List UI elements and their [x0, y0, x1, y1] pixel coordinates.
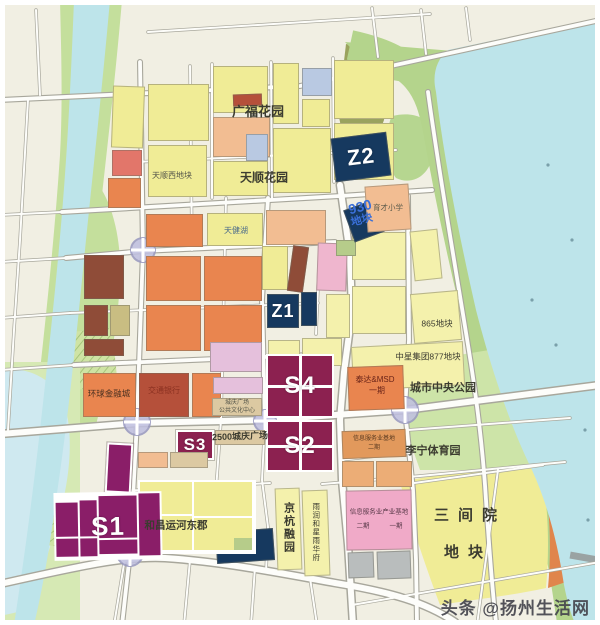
- zone-block: [262, 246, 288, 290]
- label-culture-l2: 公共文化中心: [219, 408, 255, 414]
- zone-block: [376, 461, 412, 487]
- label-info-base-l1: 信息服务业基地: [353, 436, 395, 442]
- label-hechang: 和昌运河东郡: [145, 520, 208, 531]
- zone-block-865: [410, 290, 462, 344]
- marker-s4-label: S4: [266, 354, 334, 418]
- zone-block: [146, 305, 201, 351]
- marker-s2-cluster: S2: [266, 420, 334, 472]
- label-central-park: 城市中央公园: [410, 383, 476, 395]
- label-sanjianyuan: 三间院: [434, 508, 506, 524]
- zone-block: [146, 256, 201, 301]
- zone-block: [266, 210, 326, 245]
- zone-block: [84, 255, 124, 299]
- label-teda: 泰达&MSD: [355, 376, 394, 384]
- zone-block-s1-north: [105, 442, 134, 493]
- zone-block: [342, 461, 374, 487]
- label-tianshun-west: 天顺西地块: [152, 172, 192, 180]
- zone-block: [352, 286, 406, 334]
- zone-block: [138, 452, 168, 468]
- label-lining-sports: 李宁体育园: [406, 446, 461, 458]
- marker-z2-block: Z2: [331, 132, 392, 182]
- zone-block: [148, 84, 209, 141]
- label-info-base-l2: 二期: [368, 445, 380, 451]
- label-global-finance: 环球金融城: [88, 390, 131, 399]
- zone-block: [170, 452, 208, 468]
- zone-block: [409, 229, 442, 282]
- label-guangfu-garden: 广福花园: [232, 105, 284, 119]
- watermark: 头条 @扬州生活网: [441, 594, 590, 619]
- label-info-industry: 信息服务业产业基地: [350, 510, 409, 517]
- label-info-industry-p2: 二期: [357, 524, 370, 531]
- zone-block: [348, 552, 375, 579]
- label-yucai-school: 育才小学: [373, 204, 403, 212]
- marker-z2-label: Z2: [332, 133, 391, 181]
- zone-block: [84, 339, 124, 356]
- label-2500-plaza: 2500城庆广场: [212, 431, 268, 442]
- marker-s2-label: S2: [266, 420, 334, 472]
- label-tianshun-garden: 天顺花园: [240, 172, 288, 185]
- marker-s4-cluster: S4: [266, 354, 334, 418]
- label-877: 中星集团877地块: [395, 353, 460, 362]
- label-sanjianyuan-parcel: 地块: [444, 545, 492, 561]
- zone-block: [302, 99, 330, 127]
- zone-block: [377, 550, 412, 579]
- label-culture-l1: 城庆广场: [225, 400, 249, 406]
- zone-block: [213, 377, 263, 394]
- zone-block: [111, 85, 145, 148]
- label-865: 865地块: [421, 320, 452, 329]
- zone-block: [112, 150, 142, 176]
- marker-z1-block: Z1: [267, 294, 299, 328]
- label-yurun: 雨润和星雨华府: [312, 502, 320, 562]
- zone-block: [204, 256, 262, 301]
- marker-z1-label: Z1: [268, 295, 298, 327]
- label-teda-phase: 一期: [369, 387, 385, 395]
- zone-block: [210, 342, 262, 372]
- zone-block: [334, 60, 394, 119]
- zone-block: [336, 240, 356, 256]
- label-tianjian-lake: 天健湖: [224, 227, 248, 235]
- marker-z1-block-2: [301, 292, 317, 326]
- zone-block-info-industry: [345, 489, 412, 550]
- zone-block: [108, 178, 141, 208]
- zone-block: [84, 305, 108, 336]
- zone-block: [146, 214, 203, 247]
- zone-block: [326, 294, 350, 338]
- zone-block: [302, 68, 332, 96]
- label-bank: 交通银行: [148, 387, 180, 395]
- label-info-industry-p1: 一期: [390, 524, 403, 531]
- zone-block: [246, 134, 268, 161]
- label-jinghang: 京杭融园: [283, 502, 294, 554]
- zone-block: [110, 305, 130, 336]
- planning-map: Z2 Z1 S4 S2 S3 Z3: [0, 0, 600, 625]
